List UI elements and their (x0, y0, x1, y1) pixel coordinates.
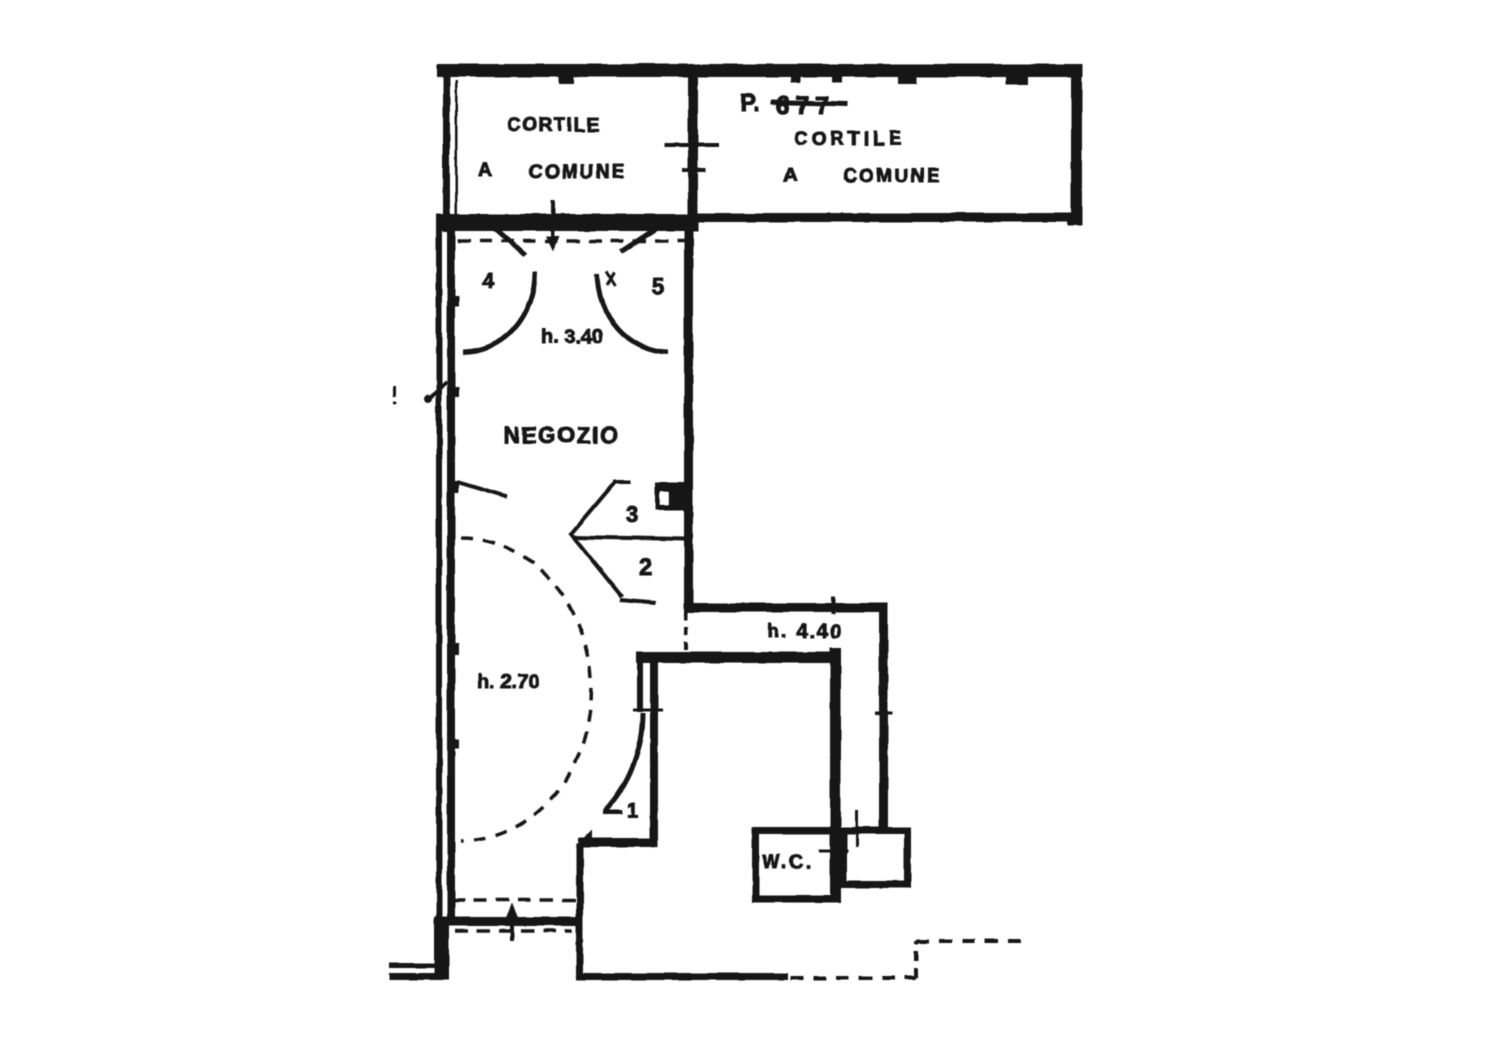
svg-text:COMUNE: COMUNE (843, 166, 942, 187)
svg-text:NEGOZIO: NEGOZIO (503, 422, 620, 448)
svg-text:h. 4.40: h. 4.40 (767, 621, 843, 643)
svg-text:P.: P. (740, 90, 760, 117)
svg-text:4: 4 (482, 268, 495, 293)
svg-text:A: A (784, 165, 798, 186)
svg-text:2: 2 (639, 554, 652, 581)
svg-text:h. 3.40: h. 3.40 (541, 326, 603, 348)
svg-text:COMUNE: COMUNE (529, 162, 627, 183)
svg-text:CORTILE: CORTILE (794, 129, 905, 150)
svg-text:CORTILE: CORTILE (507, 115, 601, 136)
svg-text:3: 3 (626, 502, 638, 527)
svg-text:h. 2.70: h. 2.70 (477, 671, 539, 693)
svg-text:5: 5 (652, 274, 664, 299)
svg-text:W.C.: W.C. (762, 852, 813, 873)
svg-text:A: A (478, 160, 492, 181)
svg-text:1: 1 (627, 799, 639, 822)
